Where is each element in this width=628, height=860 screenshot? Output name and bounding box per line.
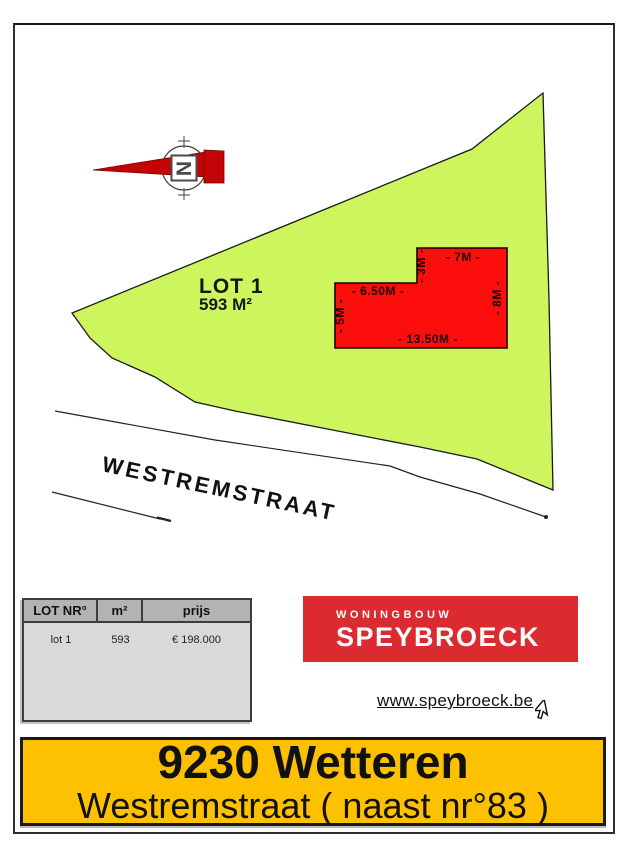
lot-area-label: 593 M²: [199, 295, 252, 314]
dim-left-height: - 5M -: [333, 299, 347, 333]
col-header-lot-nr: LOT NR°: [24, 600, 98, 621]
street-name-label: WESTREMSTRAAT: [100, 451, 339, 525]
address-banner: 9230 Wetteren Westremstraat ( naast nr°8…: [20, 737, 606, 826]
road-edge-end-dot: [544, 515, 548, 519]
col-header-m2: m²: [98, 600, 143, 621]
north-arrow-compass: N: [93, 136, 224, 200]
logo-tagline: WONINGBOUW: [336, 609, 578, 621]
north-arrow-tail: [204, 150, 224, 183]
price-table: LOT NR° m² prijs lot 1 593 € 198.000: [22, 598, 252, 722]
cursor-arrow-icon: [535, 700, 555, 722]
table-row: lot 1 593 € 198.000: [24, 623, 250, 646]
website-link[interactable]: www.speybroeck.be: [377, 691, 533, 711]
speybroeck-logo: WONINGBOUW SPEYBROECK: [303, 596, 578, 662]
cell-price: € 198.000: [143, 634, 250, 646]
dim-right-height: - 8M -: [490, 281, 504, 315]
road-edge-lower: [52, 492, 160, 519]
compass-north-letter: N: [173, 161, 196, 176]
cell-area: 593: [98, 634, 143, 646]
dim-bottom-width: - 13.50M -: [398, 332, 458, 346]
col-header-prijs: prijs: [143, 600, 250, 621]
road-edge-lower-tick: [157, 518, 171, 522]
dim-upper-width: - 6.50M -: [352, 284, 405, 298]
banner-city: 9230 Wetteren: [157, 739, 468, 785]
dim-top-width: - 7M -: [446, 250, 480, 264]
price-table-header: LOT NR° m² prijs: [24, 600, 250, 623]
website-row: www.speybroeck.be: [377, 691, 555, 722]
dim-notch-height: - 3M -: [414, 249, 428, 283]
banner-street: Westremstraat ( naast nr°83 ): [77, 787, 549, 825]
logo-company-name: SPEYBROECK: [336, 622, 578, 653]
site-plan-drawing: WESTREMSTRAAT LOT 1 593 M² - 7M - - 3M -…: [0, 0, 628, 590]
cell-lot-nr: lot 1: [24, 634, 98, 646]
lot-plan-sheet: WESTREMSTRAAT LOT 1 593 M² - 7M - - 3M -…: [0, 0, 628, 860]
